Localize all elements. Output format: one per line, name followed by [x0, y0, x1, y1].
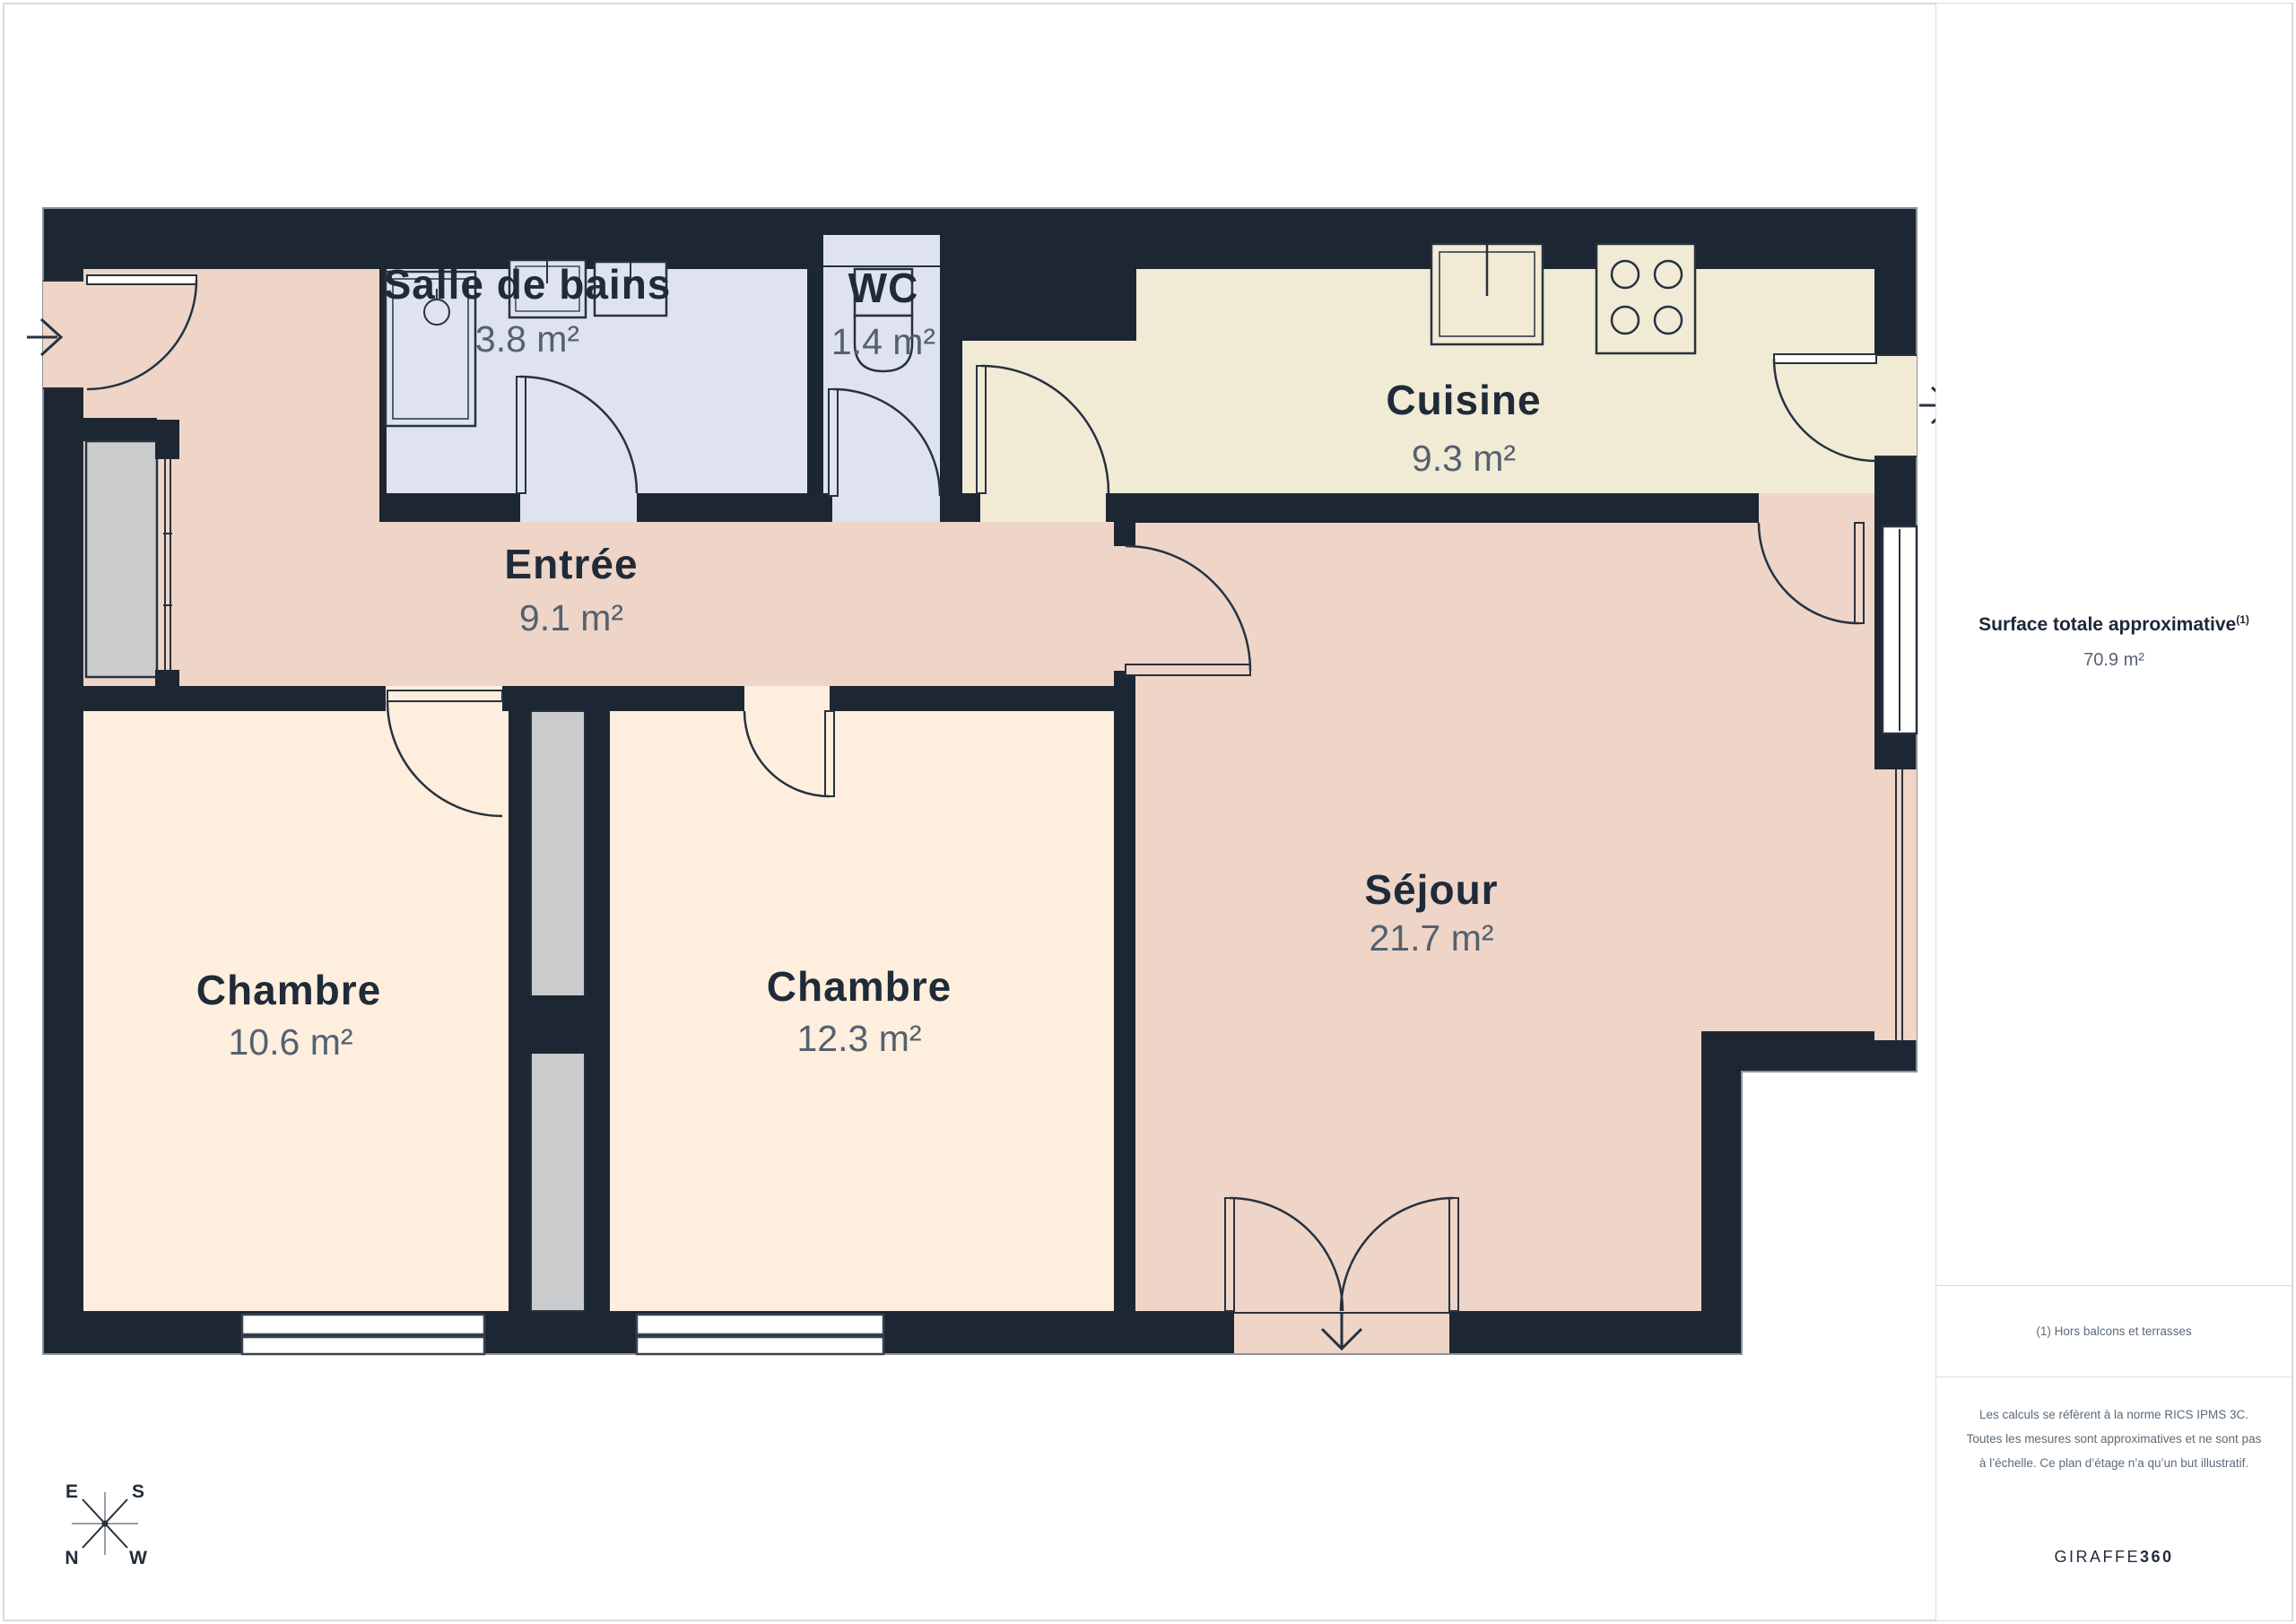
kitchen-sejour-threshold	[1759, 493, 1874, 523]
floorplan-page: { "colors": { "wall": "#1d2733", "line":…	[0, 0, 2296, 1624]
room-title-chambre1: Chambre	[196, 967, 381, 1013]
bath-door-threshold	[520, 493, 637, 522]
room-area-chambre2: 12.3 m²	[797, 1018, 922, 1059]
exit-door-threshold	[1874, 354, 1917, 457]
room-title-cuisine: Cuisine	[1386, 377, 1541, 423]
room-title-chambre2: Chambre	[767, 963, 952, 1010]
room-area-sejour: 21.7 m²	[1370, 917, 1494, 959]
compass-north: N	[65, 1548, 78, 1568]
room-area-entree: 9.1 m²	[519, 597, 623, 638]
giraffe360-logo: GIRAFFE360	[1936, 1548, 2292, 1567]
chambre1-window	[242, 1337, 484, 1354]
surface-total-text: Surface totale approximative	[1979, 614, 2236, 635]
compass-icon: E S N W	[65, 1481, 147, 1568]
surface-total-label: Surface totale approximative(1)	[1936, 613, 2292, 636]
entry-threshold	[43, 280, 83, 389]
room-area-chambre1: 10.6 m²	[229, 1021, 353, 1063]
surface-total-footnote-ref: (1)	[2236, 613, 2249, 626]
room-area-cuisine: 9.3 m²	[1412, 438, 1516, 479]
surface-total-block: Surface totale approximative(1) 70.9 m²	[1936, 613, 2292, 671]
room-title-wc: WC	[848, 265, 919, 311]
room-title-entree: Entrée	[504, 541, 638, 587]
brand-suffix: 360	[2140, 1548, 2174, 1566]
chambre2-floor	[610, 711, 1114, 1311]
compass-west: W	[129, 1548, 147, 1568]
room-area-wc: 1.4 m²	[831, 321, 935, 362]
compass-south: S	[132, 1481, 144, 1502]
brand-name: GIRAFFE	[2054, 1548, 2140, 1566]
kitchen-door-threshold	[980, 493, 1106, 522]
room-area-salle-de-bains: 3.8 m²	[475, 318, 579, 360]
chambre2-door-threshold	[744, 686, 830, 711]
wc-door-threshold	[832, 493, 940, 522]
room-title-sejour: Séjour	[1364, 866, 1498, 913]
stove-icon	[1596, 244, 1695, 353]
footnote-text: (1) Hors balcons et terrasses	[2036, 1324, 2191, 1338]
chambre2-window	[637, 1315, 883, 1334]
room-title-salle-de-bains: Salle de bains	[384, 261, 672, 308]
disclaimer-text: Les calculs se réfèrent à la norme RICS …	[1966, 1403, 2262, 1475]
kitchen-sink-icon	[1431, 244, 1543, 344]
sejour-door-threshold	[1114, 546, 1135, 671]
chambre1-window	[242, 1315, 484, 1334]
surface-total-value: 70.9 m²	[1936, 650, 2292, 671]
chambre2-window	[637, 1337, 883, 1354]
info-sidebar: Surface totale approximative(1) 70.9 m² …	[1935, 4, 2292, 1620]
left-window-bay	[81, 418, 179, 706]
footnote-box: (1) Hors balcons et terrasses	[1936, 1285, 2292, 1377]
compass-east: E	[65, 1481, 78, 1502]
